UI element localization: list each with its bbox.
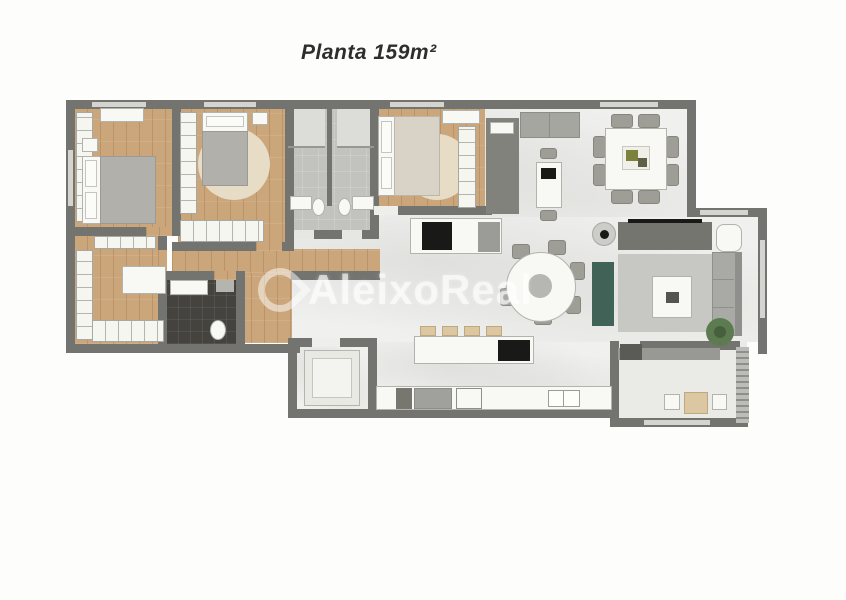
kitchen-cabinet-gray — [478, 222, 500, 252]
dining-chair — [638, 190, 660, 204]
shower-bathroom-2 — [337, 108, 374, 148]
dining-chair — [666, 164, 679, 186]
balcony-table — [684, 392, 708, 414]
wall-bedroom2-bath — [285, 100, 294, 242]
cabinet-item — [490, 122, 514, 134]
dresser-bedroom-1 — [100, 108, 144, 122]
sideboard-divider — [549, 113, 550, 137]
door-master-bedroom — [374, 206, 398, 215]
watermark-text: AleixoReal — [308, 266, 533, 314]
toilet-bathroom-2 — [338, 198, 351, 216]
wall-kitchen-bottom — [288, 409, 618, 418]
pillow — [85, 160, 97, 187]
sofa-cushion-line — [713, 307, 734, 308]
door-bedroom-1 — [146, 227, 172, 236]
kitchen-sink-divider — [563, 391, 564, 406]
sofa-cushion-line — [713, 279, 734, 280]
floor-plan-image: Planta 159m² — [0, 0, 846, 600]
dining-chair — [611, 190, 633, 204]
window-dining — [600, 102, 658, 107]
island-stool — [442, 326, 458, 336]
pillow — [381, 121, 392, 153]
dishwasher — [456, 388, 482, 409]
window-master-bedroom — [390, 102, 444, 107]
wall-bath-divider — [327, 106, 332, 206]
tv-console — [618, 222, 712, 250]
refrigerator — [396, 388, 412, 409]
shower-glass-bathroom-1 — [288, 146, 325, 148]
bar-stool — [540, 210, 557, 221]
toilet-master-bathroom — [210, 320, 226, 340]
nightstand-bedroom-2 — [252, 112, 268, 125]
dining-chair — [666, 136, 679, 158]
tv-screen — [628, 219, 702, 223]
armchair — [716, 224, 742, 252]
bed-blanket-bedroom-1 — [100, 156, 156, 224]
door-bathroom-2 — [342, 230, 362, 239]
wall-masterbath-right — [236, 271, 245, 353]
bar-stool — [540, 148, 557, 159]
dresser-master-bedroom — [442, 110, 480, 124]
window-left-wall — [68, 150, 73, 206]
window-step-wall — [700, 210, 748, 215]
vanity-master-bathroom — [170, 280, 208, 295]
door-master-bathroom — [214, 271, 236, 280]
sideboard-dining — [520, 112, 580, 138]
bed-blanket-master — [394, 116, 440, 196]
shelf-master-bathroom — [216, 280, 234, 292]
window-bedroom-2 — [204, 102, 256, 107]
sofa-backrest — [735, 252, 742, 336]
page-title: Planta 159m² — [301, 41, 437, 65]
wardrobe-master-bedroom — [458, 126, 476, 208]
island-stool — [420, 326, 436, 336]
bar-console-item — [541, 168, 556, 179]
dining-chair — [638, 114, 660, 128]
window-right-wall — [760, 240, 765, 318]
window-bedroom-1 — [92, 102, 146, 107]
sink-bathroom-2 — [352, 196, 374, 210]
sink-bathroom-1 — [290, 196, 312, 210]
plant-center — [714, 326, 726, 338]
pillow — [206, 116, 244, 127]
dining-chair — [611, 114, 633, 128]
wall-leftwing-bottom — [66, 344, 300, 353]
closet-shelves-bottom — [92, 320, 164, 342]
stove — [414, 388, 452, 409]
balcony-chair — [712, 394, 727, 410]
bed-blanket-bedroom-2 — [202, 131, 248, 186]
kitchen-sink — [548, 390, 580, 407]
toilet-bathroom-1 — [312, 198, 325, 216]
closet-shelves-left — [76, 250, 93, 340]
nightstand-bedroom-1 — [82, 138, 98, 152]
coffee-table-decor — [666, 292, 679, 303]
pillow — [381, 157, 392, 189]
island-stool — [464, 326, 480, 336]
closet-shelves-top — [94, 236, 156, 249]
door-bathroom-1 — [294, 230, 314, 239]
wardrobe-bedroom-2 — [180, 112, 197, 214]
laundry-tub — [312, 358, 352, 398]
pillow — [85, 192, 97, 219]
balcony-grill — [620, 344, 642, 360]
door-bedroom-2 — [256, 242, 282, 251]
wall-laundry-left — [288, 338, 297, 418]
door-laundry — [312, 338, 340, 347]
closet-island — [122, 266, 166, 294]
wall-right-top — [687, 100, 696, 217]
dining-centerpiece-bowl — [638, 158, 647, 167]
floor-speaker-center — [600, 230, 609, 239]
built-in-oven — [422, 222, 452, 250]
cooktop — [498, 340, 530, 361]
dresser-bedroom-2 — [180, 220, 264, 242]
island-stool — [486, 326, 502, 336]
dining-centerpiece-plant — [626, 150, 638, 161]
green-bench — [592, 262, 614, 326]
balcony-chair — [664, 394, 680, 410]
wall-balcony-louver — [736, 347, 749, 423]
shower-glass-bathroom-2 — [337, 146, 374, 148]
window-balcony — [644, 420, 710, 425]
